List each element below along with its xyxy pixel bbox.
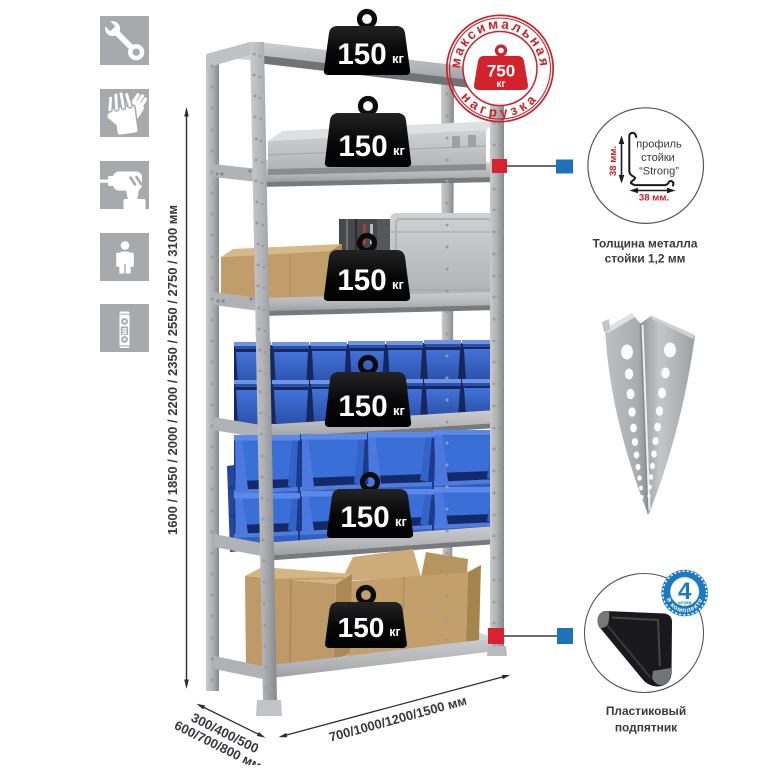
- svg-text:150: 150: [338, 390, 387, 423]
- svg-text:кг: кг: [496, 79, 505, 90]
- svg-text:Пластиковый: Пластиковый: [606, 704, 686, 718]
- svg-text:подпятник: подпятник: [615, 721, 677, 735]
- svg-text:38 мм.: 38 мм.: [608, 146, 619, 176]
- svg-text:кг: кг: [392, 51, 405, 66]
- svg-text:750: 750: [487, 62, 515, 81]
- svg-text:кг: кг: [395, 514, 408, 529]
- svg-text:150: 150: [340, 501, 389, 534]
- svg-text:150: 150: [337, 264, 386, 297]
- svg-text:кг: кг: [389, 625, 400, 639]
- svg-text:150: 150: [337, 38, 386, 71]
- svg-text:150: 150: [338, 130, 387, 163]
- svg-text:1600 / 1850 / 2000 / 2200 / 23: 1600 / 1850 / 2000 / 2200 / 2350 / 2550 …: [165, 205, 180, 535]
- svg-text:“Strong”: “Strong”: [639, 166, 679, 178]
- svg-text:штуки: штуки: [678, 600, 692, 605]
- svg-text:кг: кг: [392, 277, 405, 292]
- svg-text:кг: кг: [393, 403, 406, 418]
- svg-text:150: 150: [338, 612, 385, 643]
- svg-text:кг: кг: [393, 143, 406, 158]
- svg-text:стойки: стойки: [641, 152, 675, 164]
- svg-text:стойки 1,2 мм: стойки 1,2 мм: [605, 252, 686, 266]
- svg-text:профиль: профиль: [636, 139, 682, 151]
- svg-text:Толщина металла: Толщина металла: [593, 237, 698, 251]
- svg-text:38 мм.: 38 мм.: [639, 193, 669, 204]
